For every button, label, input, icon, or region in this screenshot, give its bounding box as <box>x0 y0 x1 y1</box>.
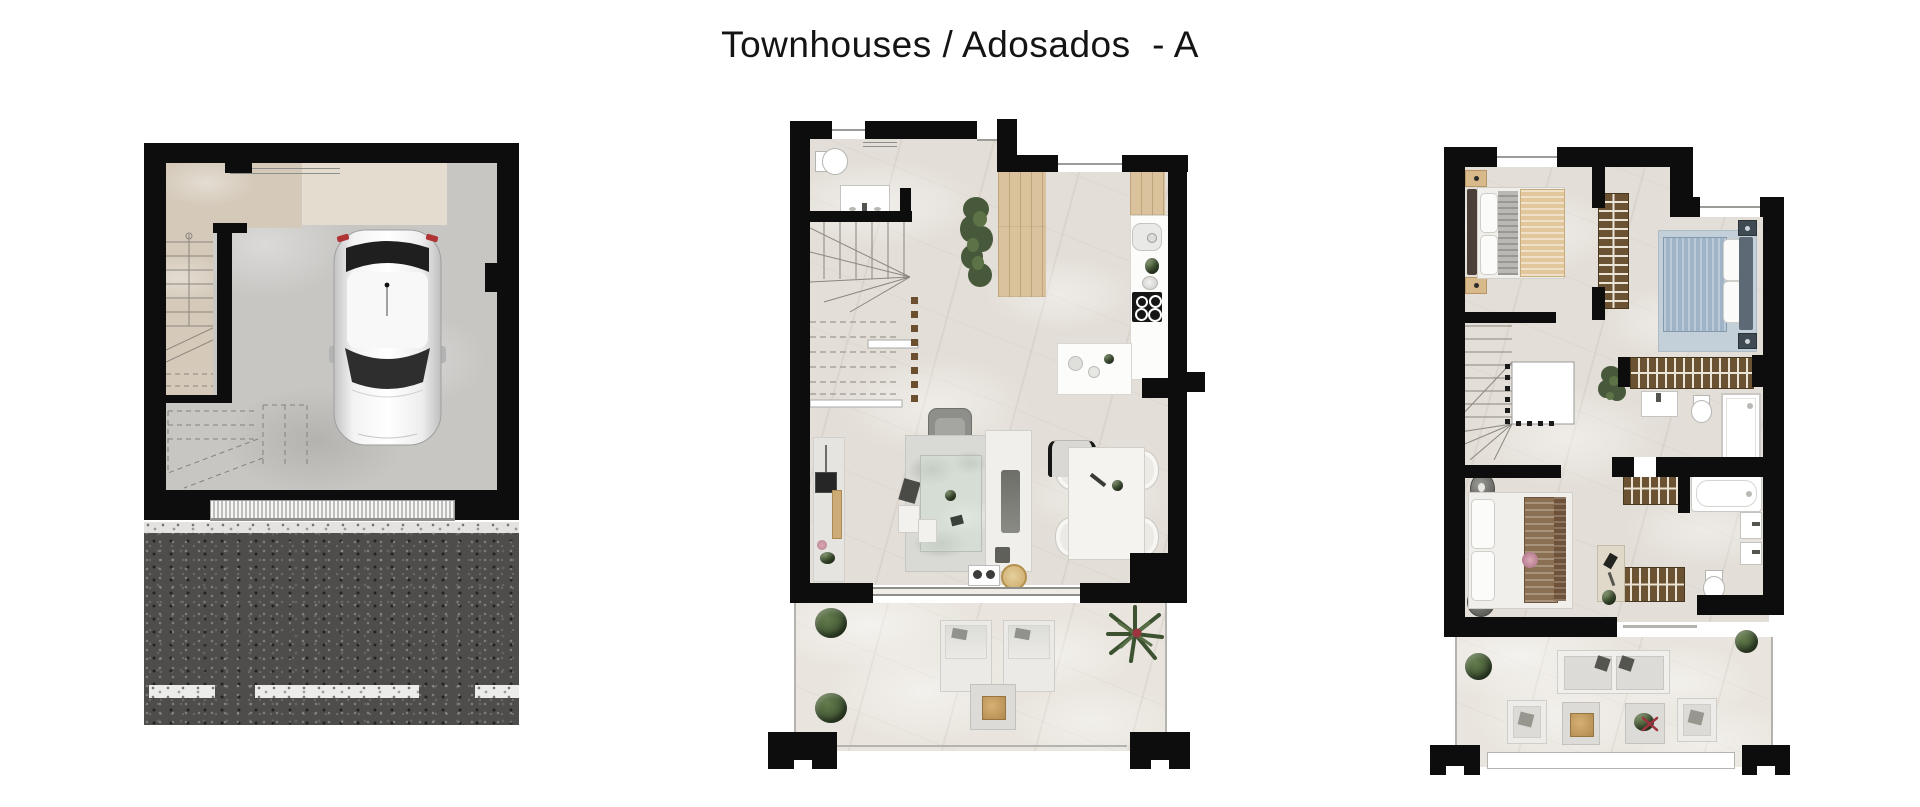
faucet <box>1656 393 1661 402</box>
nightstand <box>1465 277 1487 294</box>
terrace-door-sill <box>1623 625 1697 628</box>
bathroom-sink <box>1740 512 1762 539</box>
interior-wall-stair-side <box>217 233 232 403</box>
bathroom-wall-stub <box>900 188 911 211</box>
red-flower <box>1640 714 1660 734</box>
faucet <box>1752 550 1760 554</box>
plant-deco <box>820 552 835 564</box>
bed-pillow <box>1471 499 1495 549</box>
wardrobe-wall-stub <box>1592 287 1605 320</box>
staircase-winder <box>810 222 925 409</box>
wardrobe-wall-stub <box>1592 158 1605 208</box>
terrace-pillar <box>1430 745 1480 775</box>
bed-throw <box>1498 191 1518 275</box>
terrace-bush <box>815 608 847 638</box>
page-title: Townhouses / Adosados - A <box>0 24 1920 66</box>
kitchen-sink <box>1132 223 1162 251</box>
exterior-wall-top <box>1557 147 1673 167</box>
ramp-stairs-dashed <box>166 403 310 490</box>
wardrobe-wall-stub <box>1752 355 1763 387</box>
dining-table <box>1068 447 1145 560</box>
window <box>1700 197 1760 217</box>
bed-runner <box>1554 497 1566 601</box>
nightstand <box>1738 220 1757 236</box>
plate <box>1068 356 1083 371</box>
living-wall-bottom-right <box>1080 583 1130 603</box>
terrace-bush <box>815 693 847 723</box>
bed-headboard <box>1467 189 1477 275</box>
floor-plan-sheet: Townhouses / Adosados - A <box>0 0 1920 807</box>
wardrobe <box>1630 357 1754 389</box>
phone-deco <box>1603 553 1618 570</box>
nightstand <box>1738 333 1757 349</box>
side-table <box>918 519 937 543</box>
herb-sprig <box>1104 354 1114 364</box>
window <box>832 121 865 139</box>
outdoor-table-flowers <box>1625 703 1665 744</box>
bedroom2-wall-bottom <box>1457 617 1617 637</box>
sofa-back-cushions <box>1001 470 1020 533</box>
kitchen-plant <box>1145 258 1159 274</box>
road-dash-mark <box>255 685 419 698</box>
vanity-sink <box>1641 391 1678 417</box>
living-wall-bottom-right <box>1130 553 1187 603</box>
car-top-view <box>328 228 447 447</box>
bathtub <box>1691 475 1762 512</box>
terrace-pillar <box>1130 732 1190 769</box>
terrace-bush <box>1465 653 1492 680</box>
bathroom-door-opening <box>1634 457 1656 477</box>
exterior-wall-right <box>497 143 519 520</box>
exterior-wall-left <box>144 143 166 520</box>
toilet <box>815 148 848 173</box>
plate <box>1088 366 1100 378</box>
wall-pier <box>485 263 500 292</box>
kitchen-wood-floor <box>1130 172 1165 215</box>
exterior-mask <box>1693 147 1784 197</box>
door-jamb <box>225 160 252 173</box>
road-dash-mark <box>149 685 215 698</box>
exterior-wall-left <box>790 121 810 583</box>
window <box>1497 147 1557 167</box>
exterior-wall-top <box>865 121 977 139</box>
bed-blanket-tan <box>1520 189 1565 277</box>
fruit-plate <box>1142 276 1158 290</box>
wall-pier-inner <box>1142 378 1168 398</box>
side-table <box>898 505 920 533</box>
pen-deco <box>1608 572 1616 586</box>
shower <box>1721 393 1761 464</box>
plan-basement-garage <box>144 143 519 725</box>
closet-line <box>863 142 897 147</box>
palm-plant <box>1105 603 1165 665</box>
table-book <box>950 515 964 527</box>
outdoor-sofa <box>1557 650 1670 694</box>
window <box>1058 155 1122 172</box>
terrace-edge-left <box>794 603 796 749</box>
wardrobe-wall-stub <box>1618 357 1630 387</box>
exterior-mask <box>997 119 1188 155</box>
exterior-wall-right <box>1763 197 1784 615</box>
bed-headboard-slate <box>1739 237 1753 330</box>
terrace-edge-bottom <box>837 745 1127 747</box>
exterior-wall-top <box>144 143 519 163</box>
desk-plant <box>1602 590 1616 605</box>
staircase-up <box>166 228 213 395</box>
terrace-bush <box>1735 630 1758 653</box>
interior-wall-stair-top <box>213 223 247 233</box>
bed-pillow <box>1471 551 1495 601</box>
bathroom2-wall-bottom <box>1697 595 1784 615</box>
cooktop <box>1132 292 1162 322</box>
faucet <box>1752 522 1760 526</box>
flower-deco <box>1522 552 1538 568</box>
outdoor-table <box>1562 702 1600 745</box>
exterior-wall-top-right <box>1683 197 1700 217</box>
sliding-glass-door <box>873 587 1102 596</box>
wall-pier-outer <box>1187 372 1205 392</box>
terrace-edge-right <box>1165 603 1167 749</box>
fire-pit-table <box>970 684 1016 730</box>
outdoor-armchair <box>1677 698 1717 742</box>
centerpiece-plant <box>1112 480 1123 491</box>
interior-wall-stair-bottom <box>166 395 231 403</box>
bed-blanket-blue <box>1663 237 1727 332</box>
toilet <box>1691 395 1710 423</box>
exterior-wall-right <box>1168 155 1187 603</box>
bed-blanket-brown <box>1524 497 1558 603</box>
sofa-armrest <box>995 547 1010 563</box>
bathroom-sink <box>1740 542 1762 565</box>
road-edge-line <box>144 522 519 533</box>
wardrobe <box>1622 567 1685 602</box>
bed-pillow <box>1480 235 1498 275</box>
terrace-pillar <box>1742 745 1790 775</box>
bathroom-wall <box>802 211 912 222</box>
bedroom2-wall <box>1460 465 1561 478</box>
wood-board <box>832 490 842 539</box>
garage-door <box>210 500 455 521</box>
table-plant <box>945 490 956 501</box>
living-wall-bottom-left <box>790 583 873 603</box>
kitchen-island <box>1057 343 1132 395</box>
exterior-wall-left <box>1444 147 1465 637</box>
road-dash-mark <box>475 685 519 698</box>
staircase-winder <box>1460 320 1577 460</box>
tall-plant <box>960 195 993 288</box>
outdoor-armchair <box>1507 700 1547 744</box>
bedroom1-wall <box>1460 312 1556 323</box>
terrace-balustrade <box>1487 752 1735 769</box>
nightstand <box>1465 170 1487 187</box>
burner-box <box>968 565 1000 586</box>
entry-door-opening <box>977 121 997 141</box>
wardrobe-wall-stub <box>1678 470 1690 513</box>
cutlery-deco <box>1090 473 1107 487</box>
sun-lounger <box>1003 620 1055 692</box>
sun-lounger <box>940 620 992 692</box>
plan-first-floor <box>1444 147 1784 802</box>
exterior-wall-kitchen-top <box>997 155 1058 172</box>
terrace-pillar <box>768 732 837 769</box>
flower-deco <box>817 540 827 550</box>
plan-ground-floor <box>790 119 1187 771</box>
bed-pillow <box>1480 193 1498 233</box>
entry-wood-floor <box>998 172 1046 297</box>
